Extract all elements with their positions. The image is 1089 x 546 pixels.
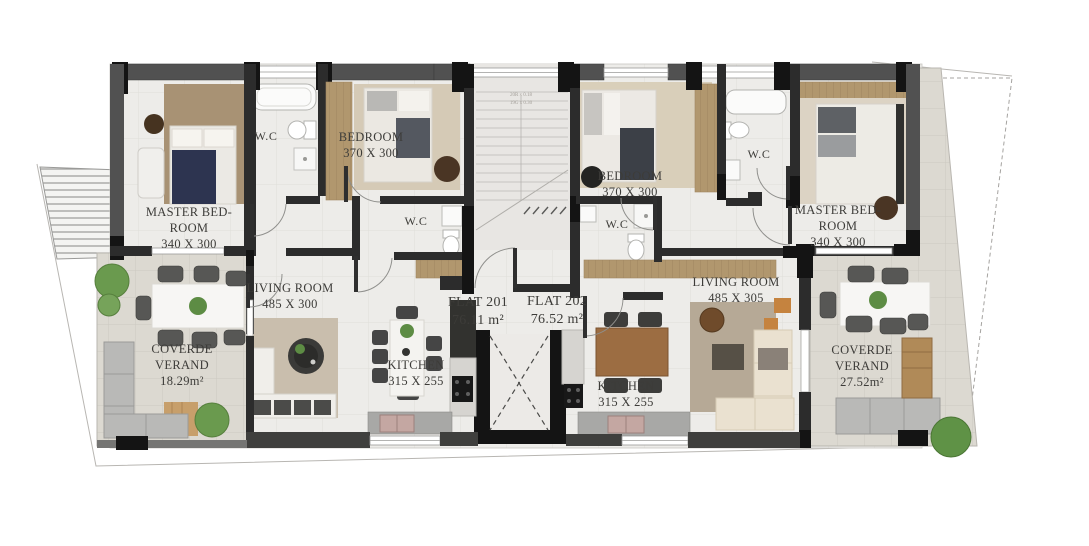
room-label-f201-wc-mid: W.C bbox=[404, 214, 427, 229]
room-label-f201-kitchen: KITCHEN 315 X 255 bbox=[388, 357, 445, 389]
floor-plan: W.C BEDROOM 370 X 300 MASTER BED- ROOM 3… bbox=[0, 0, 1089, 546]
room-label-f201-living: LIVING ROOM 485 X 300 bbox=[247, 280, 334, 312]
room-label-f202-veranda: COVERDE VERAND 27.52m² bbox=[831, 342, 892, 390]
flat202-label: FLAT 202 76.52 m² bbox=[527, 293, 587, 329]
room-label-f202-wc-top: W.C bbox=[747, 147, 770, 162]
room-label-f201-master: MASTER BED- ROOM 340 X 300 bbox=[146, 204, 232, 252]
room-label-f201-veranda: COVERDE VERAND 18.29m² bbox=[151, 341, 212, 389]
stairs-dimension-note: 20R x 0.18 19G x 0.30 bbox=[510, 92, 532, 107]
flat201-label: FLAT 201 76.11 m² bbox=[448, 294, 508, 330]
room-label-f201-bedroom: BEDROOM 370 X 300 bbox=[339, 129, 404, 161]
room-label-f201-wc-top: W.C bbox=[254, 129, 277, 144]
room-label-f202-living: LIVING ROOM 485 X 305 bbox=[693, 274, 780, 306]
room-label-f202-bedroom: BEDROOM 370 X 300 bbox=[598, 168, 663, 200]
room-label-f202-wc-mid: W.C bbox=[605, 217, 628, 232]
room-label-f202-kitchen: KITCHEN 315 X 255 bbox=[598, 378, 655, 410]
f201-wc-mid-fixtures bbox=[442, 206, 462, 256]
room-label-f202-master: MASTER BED- ROOM 340 X 300 bbox=[795, 202, 881, 250]
f202-master-furniture bbox=[796, 82, 910, 220]
floor-plan-drawing bbox=[0, 0, 1089, 546]
